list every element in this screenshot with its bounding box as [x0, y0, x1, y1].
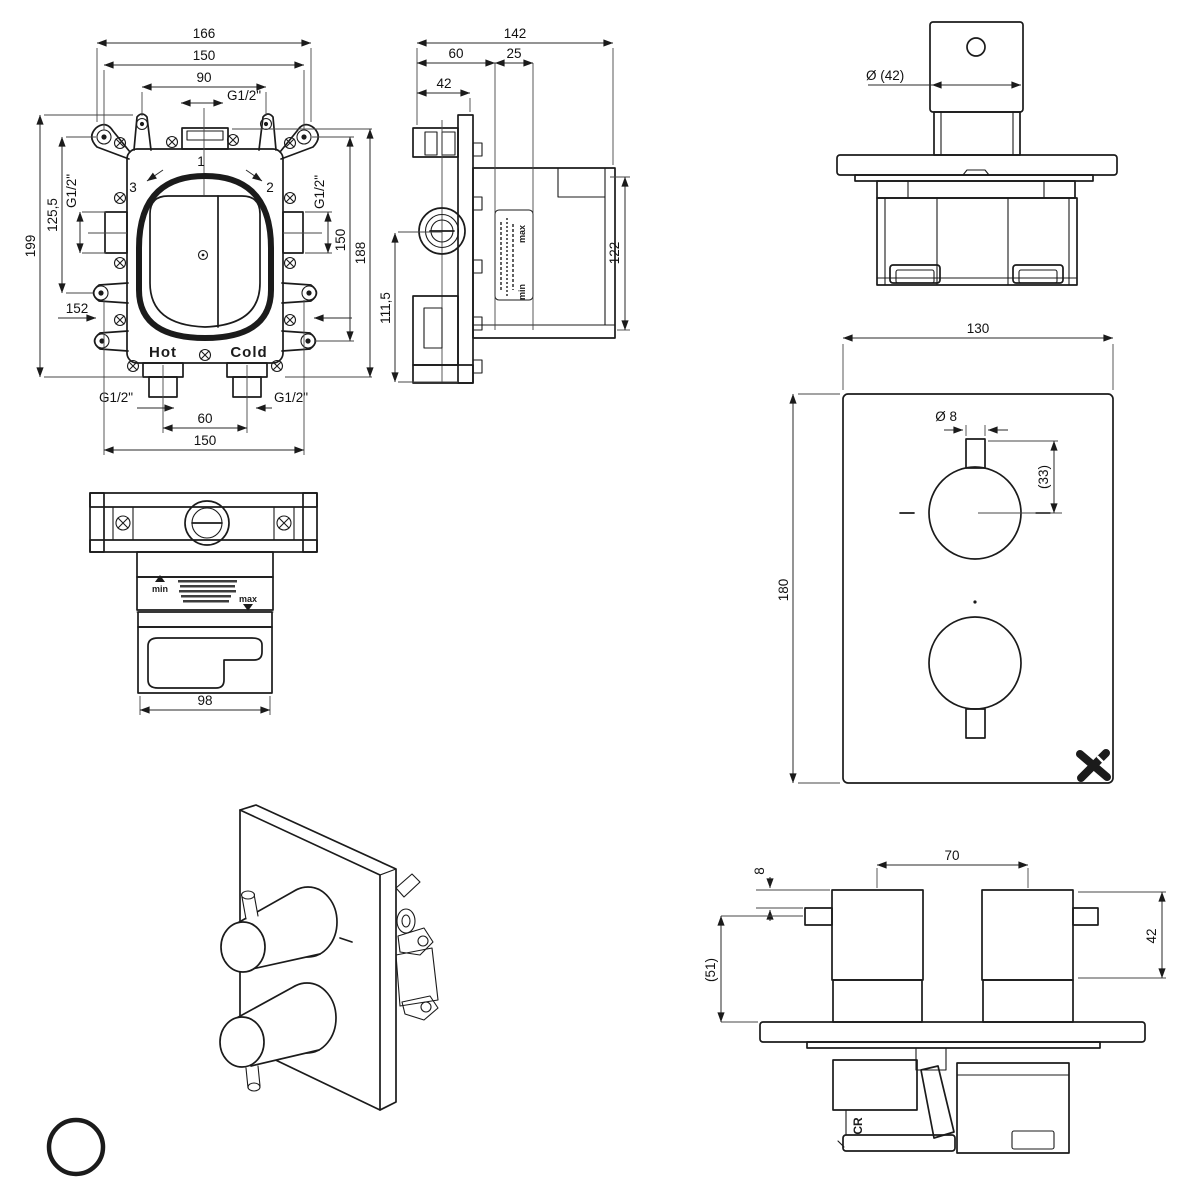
plan-max-label: max: [239, 594, 257, 604]
dim-overall-depth-trim: (51): [703, 958, 718, 982]
dim-adjust-range: 25: [506, 46, 521, 61]
side-port-right-label: G1/2": [312, 175, 327, 209]
bottom-port-right-label: G1/2": [274, 390, 308, 405]
dim-bracket-depth: 42: [436, 76, 451, 91]
side-max-label: max: [517, 225, 527, 243]
outlet-3-label: 3: [129, 180, 137, 195]
dim-plate-width: 130: [967, 321, 990, 336]
dim-front-depth: 60: [448, 46, 463, 61]
side-port-left-label: G1/2": [64, 174, 79, 208]
dim-overall-width: 166: [193, 26, 216, 41]
drawing-canvas: 1 3 2 Hot Cold 166 150 90 G1/2" G1/2" 12…: [0, 0, 1200, 1200]
dim-right-mount: 150: [333, 229, 348, 252]
dim-lower-height: 111,5: [378, 292, 393, 324]
dim-body-height: 122: [607, 242, 622, 265]
outlet-1-label: 1: [197, 154, 205, 169]
dim-lever-offset: 8: [752, 867, 767, 875]
hot-label: Hot: [149, 344, 177, 361]
dim-plate-height: 180: [776, 579, 791, 602]
dim-bottom-mount: 150: [194, 433, 217, 448]
plan-min-label: min: [152, 584, 168, 594]
dim-mount-height: 125,5: [45, 198, 60, 232]
dim-bracket-holes: 90: [196, 70, 211, 85]
cr-logo: CR: [851, 1117, 865, 1135]
cold-label: Cold: [230, 344, 267, 361]
dim-handle-dia: Ø (42): [866, 68, 904, 83]
dim-overall-height: 199: [23, 235, 38, 258]
dim-handle-depth: 42: [1144, 928, 1159, 943]
dim-right-overall: 188: [353, 242, 368, 265]
side-min-label: min: [517, 284, 527, 300]
dim-port-spacing: 60: [197, 411, 212, 426]
dim-lever-dia: Ø 8: [935, 409, 957, 424]
dim-body-width: 98: [197, 693, 212, 708]
dim-lower-holes: 152: [66, 301, 89, 316]
dim-lever-length: (33): [1036, 465, 1051, 489]
outlet-2-label: 2: [266, 180, 274, 195]
top-port-label: G1/2": [227, 88, 261, 103]
dim-handle-spacing: 70: [944, 848, 959, 863]
technical-drawing-sheet: 1 3 2 Hot Cold 166 150 90 G1/2" G1/2" 12…: [0, 0, 1200, 1200]
dim-mount-width: 150: [193, 48, 216, 63]
dim-overall-depth: 142: [504, 26, 527, 41]
